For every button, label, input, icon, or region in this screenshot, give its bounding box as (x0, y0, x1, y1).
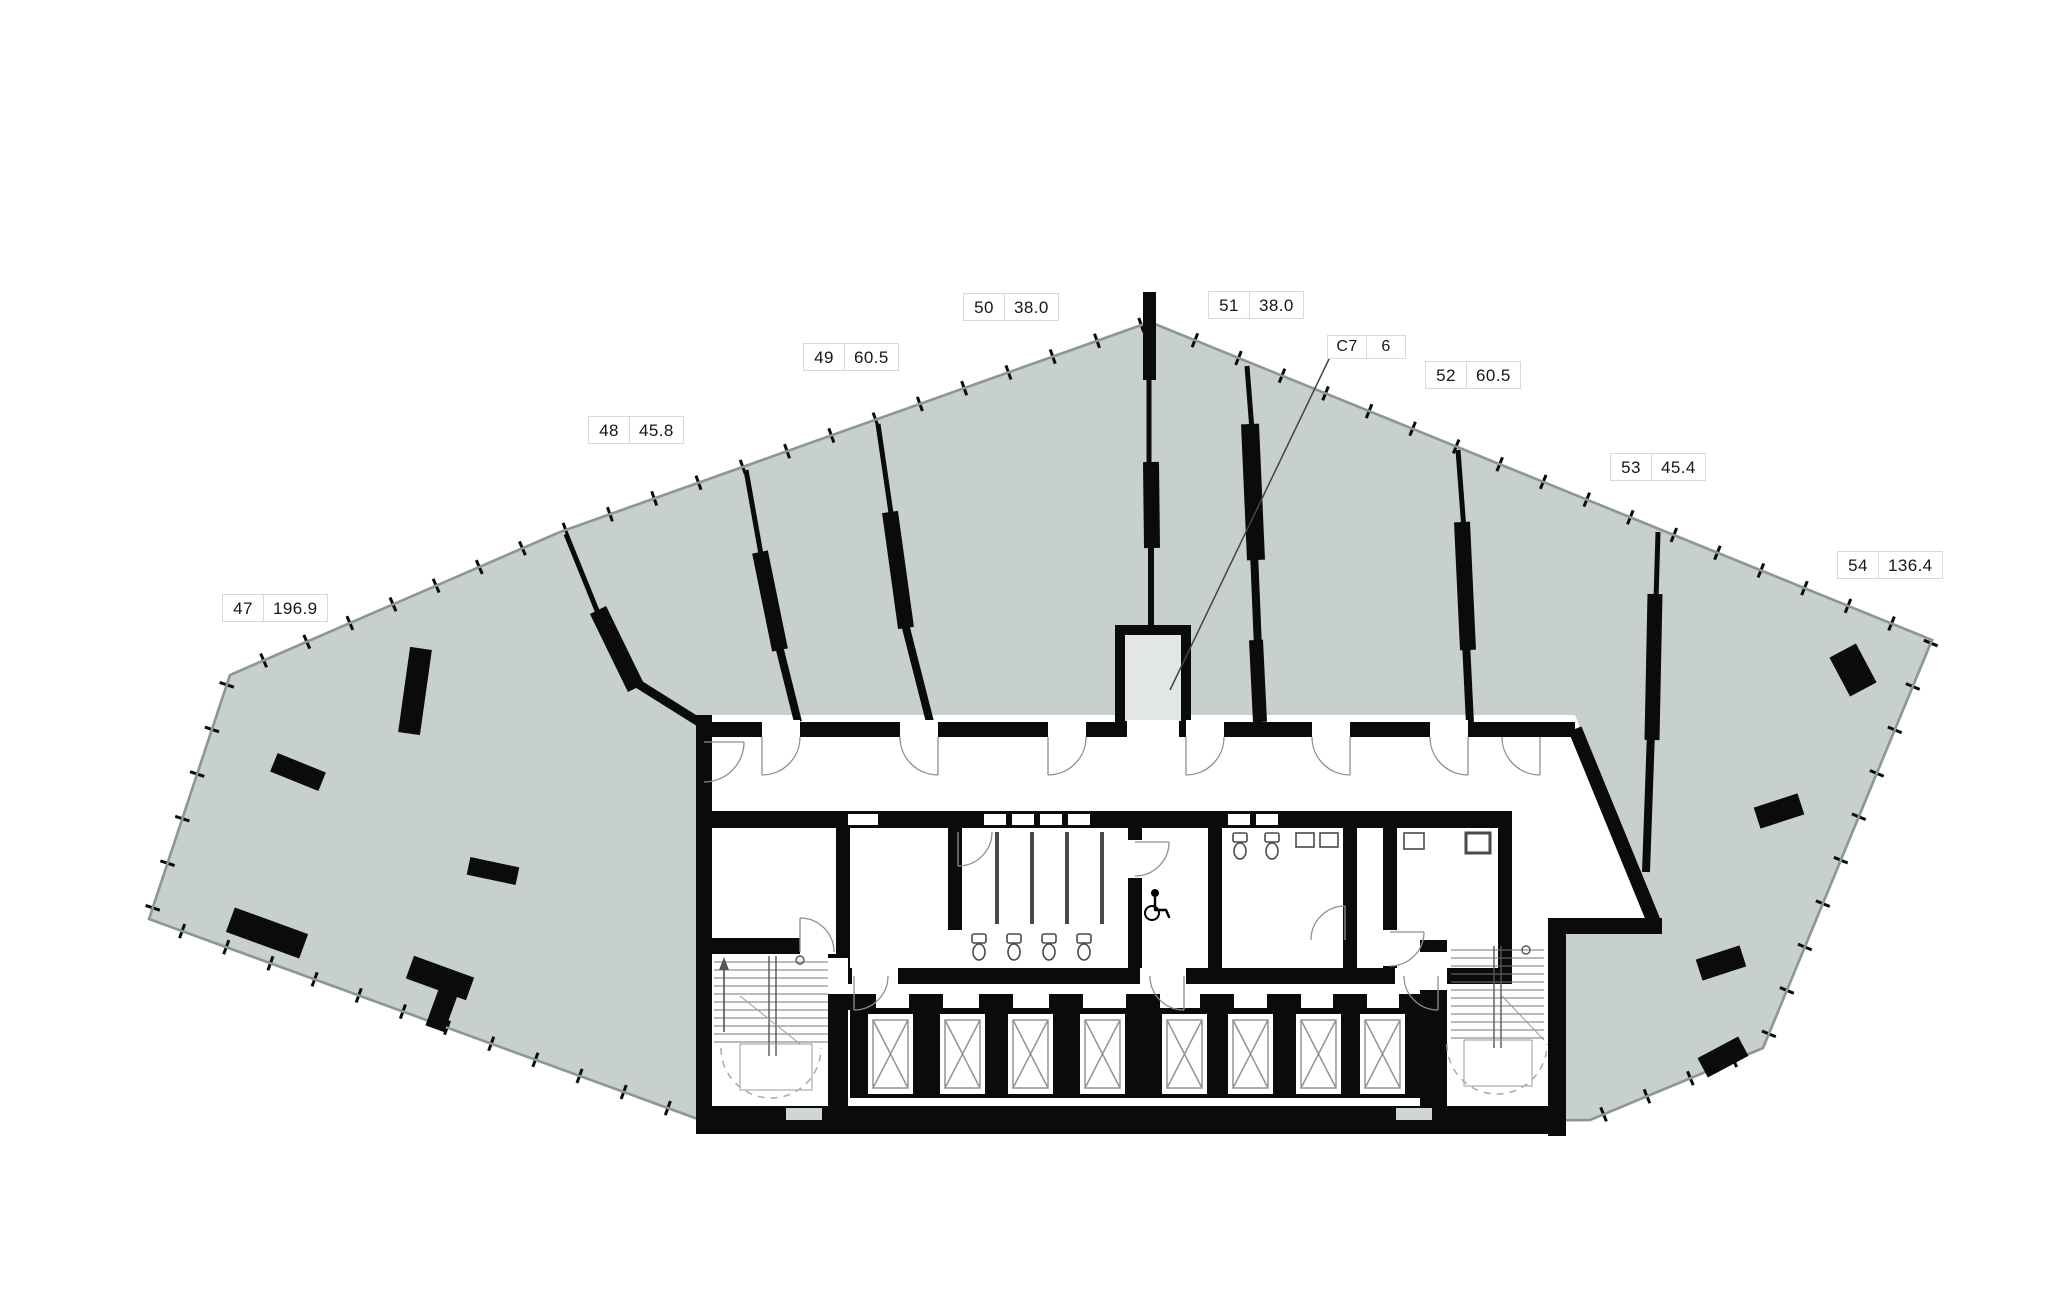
unit-area: 38.0 (1004, 294, 1058, 320)
unit-number: 54 (1838, 552, 1878, 578)
unit-number: C7 (1328, 336, 1366, 358)
unit-label-52[interactable]: 52 60.5 (1425, 361, 1521, 389)
unit-number: 52 (1426, 362, 1466, 388)
unit-label-50[interactable]: 50 38.0 (963, 293, 1059, 321)
unit-area: 45.8 (629, 417, 683, 443)
unit-number: 49 (804, 344, 844, 370)
elevator-door-stubs (842, 994, 1433, 1010)
unit-number: 47 (223, 595, 263, 621)
unit-label-48[interactable]: 48 45.8 (588, 416, 684, 444)
unit-number: 50 (964, 294, 1004, 320)
unit-label-54[interactable]: 54 136.4 (1837, 551, 1943, 579)
unit-area: 60.5 (844, 344, 898, 370)
floor-plan-canvas: 47 196.9 48 45.8 49 60.5 50 38.0 51 38.0… (0, 0, 2048, 1292)
unit-label-c7[interactable]: C7 6 (1327, 335, 1406, 359)
unit-area: 45.4 (1651, 454, 1705, 480)
elevator-bank (842, 994, 1433, 1098)
unit-label-49[interactable]: 49 60.5 (803, 343, 899, 371)
unit-number: 51 (1209, 292, 1249, 318)
unit-label-47[interactable]: 47 196.9 (222, 594, 328, 622)
unit-area: 60.5 (1466, 362, 1520, 388)
unit-area: 196.9 (263, 595, 327, 621)
unit-label-53[interactable]: 53 45.4 (1610, 453, 1706, 481)
unit-number: 48 (589, 417, 629, 443)
floor-plan-svg (0, 0, 2048, 1292)
unit-area: 38.0 (1249, 292, 1303, 318)
unit-number: 53 (1611, 454, 1651, 480)
unit-area: 6 (1366, 336, 1405, 358)
unit-label-51[interactable]: 51 38.0 (1208, 291, 1304, 319)
unit-area: 136.4 (1878, 552, 1942, 578)
c7-shaft (1115, 625, 1191, 729)
